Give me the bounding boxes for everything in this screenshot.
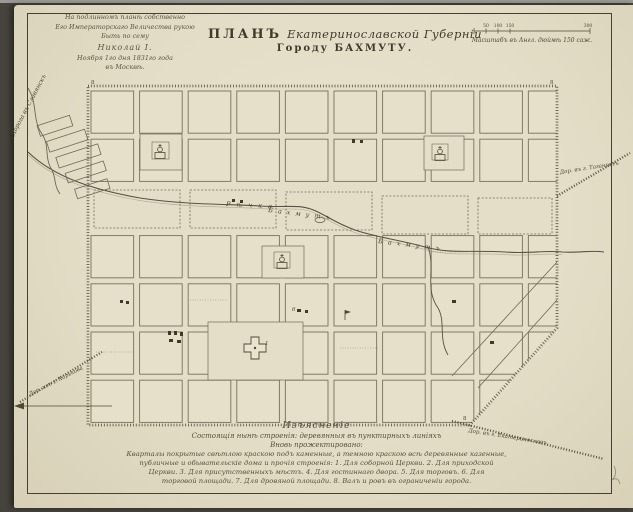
legend-body-line: Кварталы покрытые свѣтлою краскою подъ к…: [92, 450, 542, 459]
scale-tick-label: 100: [494, 23, 503, 29]
inscription-line: Быть по сему: [30, 32, 220, 42]
rampart-mark: 8: [550, 80, 554, 86]
scale-tick-label: 150: [506, 23, 515, 29]
inscription-line: Его Императорскаго Величества рукою: [30, 23, 220, 33]
legend-body-line: публичные и обывательскіе дома и прочія …: [92, 459, 542, 468]
scanned-map-photo: 50 100 150 300 Масштабъ въ Англ. дюймѣ 1…: [0, 0, 633, 512]
inscription-line: въ Москвѣ.: [30, 63, 220, 73]
legend-body-line: торговой площади. 7. Для дровяной площад…: [92, 477, 542, 486]
legend: Изъясненіе Состоящія нынѣ строенія: дере…: [0, 420, 633, 486]
road-label-east: Дор. въ г. Таганрогъ: [558, 161, 619, 176]
legend-body-line: Церкви. 3. Для присутственныхъ мѣстъ. 4.…: [92, 468, 542, 477]
imperial-inscription: На подлинномъ планѣ собственно Его Импер…: [30, 13, 220, 73]
road-label-northwest: Дорога въ Славянскъ: [9, 73, 48, 137]
inscription-line: На подлинномъ планѣ собственно: [30, 13, 220, 23]
inscription-line: Ноября 1го дня 1831го года: [30, 54, 220, 64]
legend-projected-line: Вновь прожектировано:: [0, 441, 633, 449]
legend-header: Изъясненіе: [0, 420, 633, 431]
legend-body: Кварталы покрытые свѣтлою краскою подъ к…: [92, 450, 542, 486]
road-label-southwest: Дор. изъ г. Харькова: [27, 365, 84, 398]
rampart-mark: 8: [91, 80, 95, 86]
title-plan-word: ПЛАНЪ: [208, 27, 282, 42]
block-number: 6: [292, 307, 296, 313]
title-city: Городу БАХМУТУ.: [195, 43, 495, 54]
arrow-icon: [14, 403, 24, 410]
legend-existing-line: Состоящія нынѣ строенія: деревянныя въ п…: [0, 432, 633, 440]
river-band-quarters: [88, 184, 557, 234]
tsar-signature: Николай I.: [30, 42, 220, 54]
block-number: 1: [265, 341, 269, 347]
scale-tick-label: 300: [584, 23, 593, 29]
map-title: ПЛАНЪ Екатеринославской Губерніи Городу …: [195, 23, 495, 54]
title-province: Екатеринославской Губерніи: [287, 27, 482, 41]
